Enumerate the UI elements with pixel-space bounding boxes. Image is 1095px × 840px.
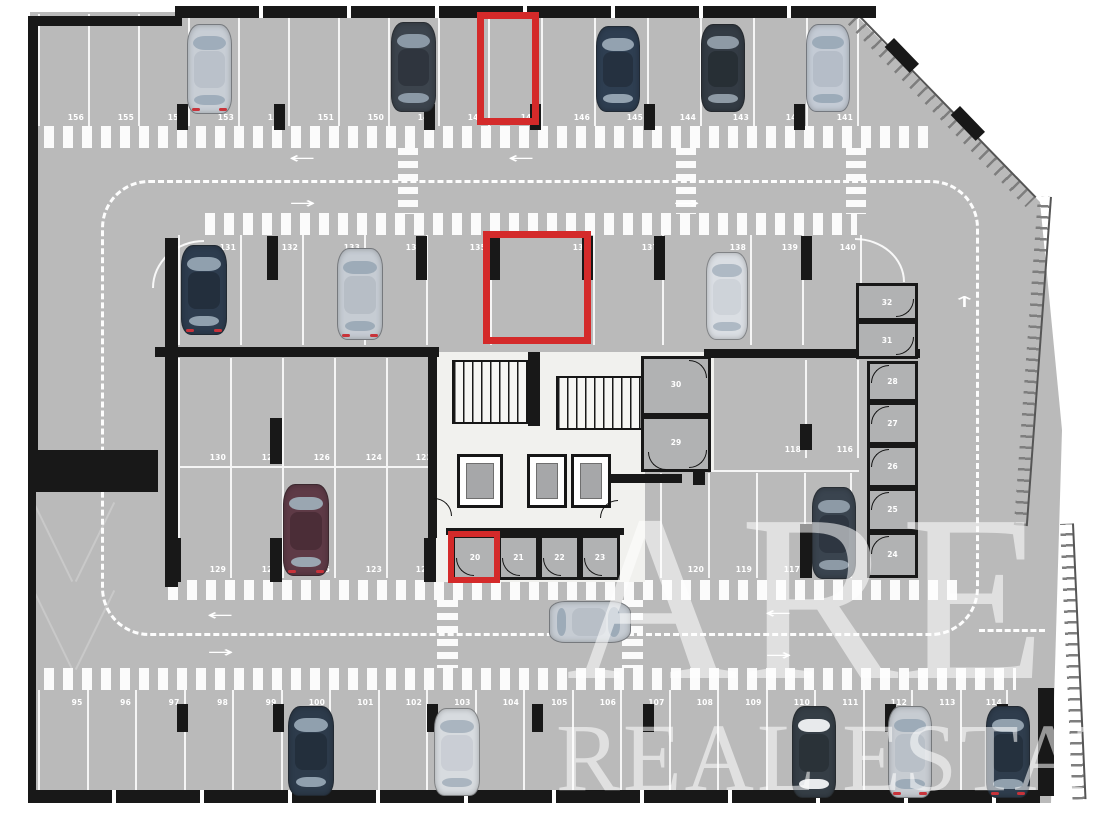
parking-spot: 101 [329, 690, 378, 798]
car-windshield [187, 257, 220, 270]
structural-column [801, 236, 812, 280]
car-rear-window [713, 322, 741, 331]
pedestrian-crossing [437, 600, 458, 668]
structural-column [794, 104, 805, 130]
car-windshield [812, 36, 844, 49]
structural-column [177, 104, 188, 130]
structural-column [177, 704, 188, 732]
parking-spot: 155 [88, 14, 138, 126]
lane-arrow-icon: ← [207, 608, 233, 623]
car-windshield [289, 497, 322, 511]
car [337, 248, 383, 340]
spot-number: 140 [840, 243, 856, 252]
room-number: 29 [644, 438, 708, 447]
wall [28, 490, 36, 795]
car-rear-window [442, 778, 473, 787]
car-rear-window [291, 557, 322, 567]
spot-number: 151 [318, 113, 334, 122]
parking-floor-plan: ARE REAL ESTATE 156155154153152151150149… [0, 0, 1095, 840]
staircase [556, 376, 644, 430]
car-rear-window [189, 316, 220, 326]
car [701, 24, 745, 112]
car-tail-light [214, 329, 222, 333]
door-arc [543, 558, 561, 576]
elevator-cab [536, 463, 558, 499]
door-arc [896, 299, 914, 317]
parking-spot: 156 [38, 14, 88, 126]
parking-spot: 98 [184, 690, 233, 798]
lane-arrow-icon: → [673, 196, 699, 211]
wall [28, 16, 182, 26]
spot-number: 153 [218, 113, 234, 122]
car-roof [194, 51, 225, 88]
watermark-text-are: ARE [566, 480, 1048, 718]
car-tail-light [316, 570, 324, 574]
car-rear-window [708, 94, 737, 103]
watermark-text-real-estate: REAL ESTATE [556, 710, 1095, 806]
parking-spot: 96 [87, 690, 136, 798]
storage-room: 28 [867, 361, 918, 402]
structural-column [800, 424, 812, 450]
car [596, 26, 640, 112]
structural-column [274, 104, 285, 130]
spot-number: 116 [837, 445, 853, 454]
car-roof [603, 52, 633, 87]
structural-column [168, 538, 181, 582]
structural-column [424, 538, 436, 582]
car-windshield [294, 718, 327, 731]
parking-spot: 104 [475, 690, 524, 798]
car-tail-light [288, 570, 296, 574]
car [181, 245, 227, 335]
spot-number: 98 [217, 698, 228, 707]
room-number: 30 [644, 380, 708, 389]
wall [852, 6, 876, 18]
storage-room: 32 [856, 283, 918, 321]
storage-room: 27 [867, 402, 918, 445]
door-arc [896, 337, 914, 355]
car-windshield [397, 34, 430, 47]
car-roof [713, 279, 742, 315]
spot-number: 138 [730, 243, 746, 252]
car [806, 24, 850, 112]
lane-arrow-icon: → [207, 645, 233, 660]
parking-spot: 102 [378, 690, 427, 798]
spot-number: 143 [733, 113, 749, 122]
spot-number: 146 [574, 113, 590, 122]
door-arc [871, 406, 889, 424]
wall [155, 347, 439, 357]
parking-spot: 130 [178, 358, 230, 466]
parking-spot: 139 [750, 235, 802, 345]
parking-spot: 137 [593, 235, 662, 345]
parking-spot: 151 [288, 14, 338, 126]
spot-number: 123 [366, 565, 382, 574]
spot-number: 95 [72, 698, 83, 707]
car-roof [295, 733, 327, 770]
car [706, 252, 748, 340]
car-roof [813, 51, 843, 87]
highlight-box [477, 12, 539, 125]
structural-column [270, 538, 282, 582]
lane-arrow-icon: → [289, 196, 315, 211]
core-wall [528, 352, 540, 426]
elevator-cab [466, 463, 494, 499]
door-arc [689, 360, 707, 378]
parking-spot: 146 [541, 14, 594, 126]
car-tail-light [192, 108, 200, 112]
elevator [457, 454, 503, 508]
car-windshield [193, 36, 226, 49]
car-roof [344, 276, 376, 314]
spot-number: 103 [454, 698, 470, 707]
car-rear-window [398, 93, 428, 103]
car-tail-light [186, 329, 194, 333]
wall [28, 16, 38, 452]
structural-column [532, 704, 543, 732]
car-roof [708, 51, 738, 87]
spot-number: 156 [68, 113, 84, 122]
storage-room: 31 [856, 321, 918, 359]
parking-spot: 135 [426, 235, 490, 345]
car [391, 22, 436, 112]
structural-column [273, 704, 284, 732]
car-rear-window [557, 608, 566, 636]
structural-column [270, 418, 282, 464]
spot-number: 141 [837, 113, 853, 122]
car-tail-light [342, 334, 350, 338]
car-rear-window [345, 321, 376, 331]
car-windshield [707, 36, 739, 49]
car [288, 706, 334, 796]
parking-spot: 129 [178, 468, 230, 578]
lane-arrow-icon: ← [508, 151, 534, 166]
lane-arrow-icon: ↑ [951, 295, 977, 310]
parking-spot: 95 [38, 690, 87, 798]
structural-column [654, 236, 665, 280]
spot-number: 102 [406, 698, 422, 707]
car-rear-window [603, 94, 632, 103]
parking-spot: 124 [334, 358, 386, 466]
spot-number: 155 [118, 113, 134, 122]
pedestrian-crossing [398, 148, 418, 214]
elevator [527, 454, 567, 508]
car [187, 24, 232, 114]
wall [28, 450, 158, 492]
spot-number: 101 [357, 698, 373, 707]
car-rear-window [813, 94, 842, 103]
spot-number: 144 [680, 113, 696, 122]
parking-spot: 123 [334, 468, 386, 578]
car-rear-window [296, 777, 327, 787]
parking-spot: 126 [282, 358, 334, 466]
door-arc [871, 449, 889, 467]
spot-number: 132 [282, 243, 298, 252]
parking-spot: 116 [805, 360, 859, 458]
spot-number: 130 [210, 453, 226, 462]
lane-arrow-icon: ← [289, 151, 315, 166]
car-roof [188, 272, 220, 309]
car-windshield [440, 720, 473, 733]
car-windshield [343, 261, 376, 275]
structural-column [267, 236, 278, 280]
spot-number: 96 [120, 698, 131, 707]
spot-number: 126 [314, 453, 330, 462]
highlight-box [483, 231, 591, 344]
spot-number: 139 [782, 243, 798, 252]
car-roof [398, 49, 429, 86]
spot-number: 104 [503, 698, 519, 707]
spot-number: 124 [366, 453, 382, 462]
car-windshield [602, 38, 634, 51]
car-tail-light [370, 334, 378, 338]
structural-column [644, 104, 655, 130]
car-tail-light [219, 108, 227, 112]
storage-room: 30 [641, 356, 711, 416]
door-arc [689, 450, 707, 468]
highlight-box [448, 531, 500, 583]
car [434, 708, 480, 796]
car-windshield [712, 264, 742, 277]
door-arc [502, 558, 520, 576]
spot-number: 145 [627, 113, 643, 122]
car [283, 484, 329, 576]
spot-number: 150 [368, 113, 384, 122]
car-roof [441, 735, 473, 771]
car-rear-window [194, 95, 224, 105]
structural-column [416, 236, 427, 280]
door-arc [871, 365, 889, 383]
staircase [452, 360, 528, 424]
pedestrian-crossing [846, 148, 866, 214]
spot-number: 129 [210, 565, 226, 574]
spot-number: 118 [785, 445, 801, 454]
storage-room: 21 [498, 535, 539, 580]
parking-spot: 150 [338, 14, 388, 126]
car-roof [290, 512, 322, 550]
wall [165, 238, 178, 348]
